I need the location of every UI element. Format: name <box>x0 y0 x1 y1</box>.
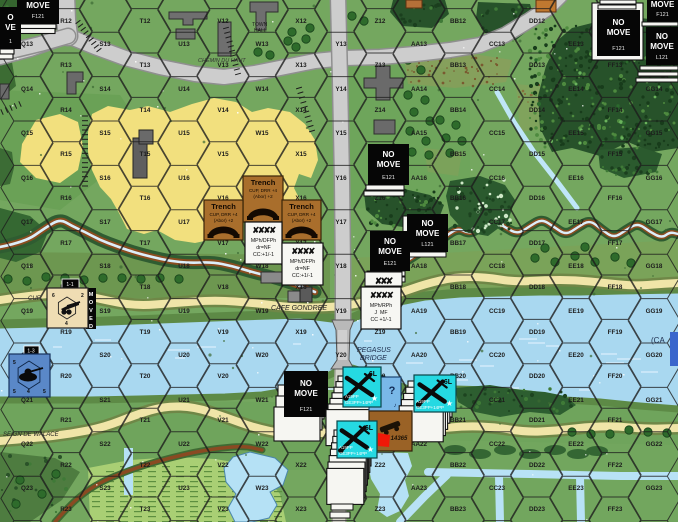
svg-text:MOVE: MOVE <box>416 229 440 238</box>
svg-text:X15: X15 <box>295 151 307 158</box>
svg-text:T13: T13 <box>140 62 151 69</box>
svg-text:Q18: Q18 <box>21 263 33 270</box>
svg-text:V17: V17 <box>217 240 229 247</box>
svg-text:V15: V15 <box>217 151 229 158</box>
svg-text:BB15: BB15 <box>450 151 467 158</box>
svg-text:MOVE: MOVE <box>650 42 674 51</box>
svg-text:✘✘✘✘: ✘✘✘✘ <box>252 225 276 235</box>
svg-text:V22: V22 <box>217 462 229 469</box>
svg-text:CUP, DRR +4: CUP, DRR +4 <box>287 212 316 217</box>
svg-text:EE16: EE16 <box>568 175 584 182</box>
svg-text:W23: W23 <box>256 485 269 492</box>
svg-text:Y14: Y14 <box>335 86 347 93</box>
svg-text:Q19: Q19 <box>21 308 33 315</box>
svg-text:NO: NO <box>422 219 434 228</box>
svg-text:Q15: Q15 <box>21 130 33 137</box>
svg-text:Q22: Q22 <box>21 441 33 448</box>
svg-text:DD20: DD20 <box>529 373 546 380</box>
svg-text:DD12: DD12 <box>529 18 546 25</box>
svg-text:DD16: DD16 <box>529 195 546 202</box>
svg-text:R21: R21 <box>60 417 72 424</box>
svg-text:CC17: CC17 <box>489 219 506 226</box>
svg-text:S19: S19 <box>99 308 111 315</box>
svg-text:A19PP: A19PP <box>416 399 430 404</box>
svg-text:V14: V14 <box>217 107 229 114</box>
svg-text:MOVE: MOVE <box>377 160 401 169</box>
svg-text:R15: R15 <box>60 151 72 158</box>
svg-text:MOVE: MOVE <box>607 28 631 37</box>
svg-text:CC14: CC14 <box>489 86 506 93</box>
svg-text:EE18: EE18 <box>568 263 584 270</box>
svg-text:GG22: GG22 <box>646 441 663 448</box>
svg-text:E: E <box>89 316 93 322</box>
svg-text:F121: F121 <box>32 14 45 20</box>
svg-text:CC13: CC13 <box>489 41 506 48</box>
svg-text:L121: L121 <box>421 242 433 248</box>
svg-text:S22: S22 <box>99 441 111 448</box>
svg-text:R19: R19 <box>60 329 72 336</box>
svg-text:Z12: Z12 <box>375 18 386 25</box>
svg-text:DD23: DD23 <box>529 506 546 513</box>
svg-text:Z23: Z23 <box>375 506 386 513</box>
svg-text:CAFE GONDREE: CAFE GONDREE <box>271 305 327 312</box>
svg-text:CC:+1/-1: CC:+1/-1 <box>253 252 274 258</box>
svg-text:FF18: FF18 <box>608 284 623 291</box>
svg-text:Q17: Q17 <box>21 219 33 226</box>
svg-text:U15: U15 <box>178 130 190 137</box>
svg-text:4: 4 <box>27 389 30 395</box>
svg-text:CC20: CC20 <box>489 352 506 359</box>
svg-text:FF17: FF17 <box>608 240 623 247</box>
svg-text:BB19: BB19 <box>450 329 467 336</box>
svg-text:MOVE: MOVE <box>378 247 402 256</box>
svg-text:(Abor) +2: (Abor) +2 <box>292 218 312 223</box>
svg-text:FF14: FF14 <box>608 107 623 114</box>
svg-text:6: 6 <box>52 293 55 299</box>
svg-text:Y19: Y19 <box>335 308 347 315</box>
svg-text:(Abor) +2: (Abor) +2 <box>214 218 234 223</box>
svg-text:EE19: EE19 <box>568 308 584 315</box>
svg-text:DD21: DD21 <box>529 417 546 424</box>
svg-text:Y16: Y16 <box>335 175 347 182</box>
svg-text:S16: S16 <box>99 175 111 182</box>
svg-text:Z14: Z14 <box>375 107 386 114</box>
svg-text:U17: U17 <box>178 219 190 226</box>
svg-text:W20: W20 <box>256 352 269 359</box>
svg-text:J MF: J MF <box>375 310 388 316</box>
svg-text:D: D <box>89 324 93 330</box>
svg-text:BB12: BB12 <box>450 18 467 25</box>
svg-text:CC:+1/-1: CC:+1/-1 <box>292 273 313 279</box>
svg-text:R20: R20 <box>60 373 72 380</box>
svg-text:AA16: AA16 <box>411 175 428 182</box>
svg-text:FF16: FF16 <box>608 195 623 202</box>
svg-text:CC19: CC19 <box>489 308 506 315</box>
svg-text:S23: S23 <box>99 485 111 492</box>
svg-text:DD17: DD17 <box>529 240 546 247</box>
svg-text:A19PP: A19PP <box>339 445 353 450</box>
svg-text:CC22: CC22 <box>489 441 506 448</box>
svg-text:X19: X19 <box>295 329 307 336</box>
svg-text:S15: S15 <box>99 130 111 137</box>
svg-text:GG20: GG20 <box>646 352 663 359</box>
svg-text:R16: R16 <box>60 195 72 202</box>
svg-text:FF19: FF19 <box>608 329 623 336</box>
svg-text:Z13: Z13 <box>375 62 386 69</box>
svg-text:BB13: BB13 <box>450 62 467 69</box>
svg-text:S20: S20 <box>99 352 111 359</box>
svg-text:V12: V12 <box>217 18 229 25</box>
svg-text:★: ★ <box>367 445 374 454</box>
svg-text:EE21: EE21 <box>568 397 584 404</box>
svg-text:V: V <box>89 308 93 314</box>
svg-text:5: 5 <box>43 389 46 395</box>
svg-text:GE3PP+14PP: GE3PP+14PP <box>416 405 444 410</box>
svg-text:EE14: EE14 <box>568 86 584 93</box>
svg-text:GG23: GG23 <box>646 485 663 492</box>
svg-text:(Abor) +2: (Abor) +2 <box>253 194 273 199</box>
svg-text:CHEMIN DU HAUT: CHEMIN DU HAUT <box>198 58 246 64</box>
svg-text:O: O <box>89 300 94 306</box>
svg-text:T16: T16 <box>140 195 151 202</box>
svg-text:X23: X23 <box>295 506 307 513</box>
svg-text:W14: W14 <box>256 86 269 93</box>
svg-text:MOVE: MOVE <box>26 1 50 10</box>
svg-text:W13: W13 <box>256 41 269 48</box>
svg-text:AA23: AA23 <box>411 485 428 492</box>
svg-text:S14: S14 <box>99 86 111 93</box>
svg-text:dr=NF: dr=NF <box>295 266 310 272</box>
svg-text:GG19: GG19 <box>646 308 663 315</box>
svg-text:U21: U21 <box>178 397 190 404</box>
svg-text:AA18: AA18 <box>411 263 428 270</box>
svg-text:BRIDGE: BRIDGE <box>360 355 387 362</box>
svg-text:PEGASUS: PEGASUS <box>357 347 391 354</box>
svg-text:AA19: AA19 <box>411 308 428 315</box>
svg-text:GG21: GG21 <box>646 397 663 404</box>
svg-text:M: M <box>89 292 94 298</box>
svg-text:Y15: Y15 <box>335 130 347 137</box>
svg-text:NO: NO <box>383 150 395 159</box>
svg-text:F121: F121 <box>300 407 313 413</box>
svg-text:U22: U22 <box>178 441 190 448</box>
svg-text:FF23: FF23 <box>608 506 623 513</box>
svg-text:V20: V20 <box>217 373 229 380</box>
svg-text:R17: R17 <box>60 240 72 247</box>
svg-text:R13: R13 <box>60 62 72 69</box>
svg-text:E121: E121 <box>382 175 395 181</box>
svg-text:V23: V23 <box>217 506 229 513</box>
svg-text:FF22: FF22 <box>608 462 623 469</box>
svg-text:R12: R12 <box>60 18 72 25</box>
svg-text:CC +1/-1: CC +1/-1 <box>371 317 392 323</box>
svg-text:EE13: EE13 <box>568 41 584 48</box>
svg-text:✘✘✘✘: ✘✘✘✘ <box>291 246 315 256</box>
svg-text:L121: L121 <box>656 55 668 61</box>
svg-text:S17: S17 <box>99 219 111 226</box>
svg-text:14365: 14365 <box>391 436 408 442</box>
svg-text:EE17: EE17 <box>568 219 584 226</box>
svg-text:GG18: GG18 <box>646 263 663 270</box>
svg-text:R22: R22 <box>60 462 72 469</box>
svg-text:T17: T17 <box>140 240 151 247</box>
svg-text:Q16: Q16 <box>21 175 33 182</box>
svg-text:X12: X12 <box>295 18 307 25</box>
svg-text:Y18: Y18 <box>335 263 347 270</box>
svg-text:S21: S21 <box>99 397 111 404</box>
svg-text:6L: 6L <box>365 425 374 432</box>
svg-text:W19: W19 <box>256 308 269 315</box>
svg-text:E121: E121 <box>384 261 397 267</box>
svg-text:V18: V18 <box>217 284 229 291</box>
svg-text:X14: X14 <box>295 107 307 114</box>
svg-text:VE: VE <box>5 23 16 32</box>
svg-text:V19: V19 <box>217 329 229 336</box>
svg-text:T18: T18 <box>140 284 151 291</box>
svg-text:T20: T20 <box>140 373 151 380</box>
svg-text:GE3PP+14PP: GE3PP+14PP <box>339 451 367 456</box>
svg-text:SEIGN DE WALACE: SEIGN DE WALACE <box>3 432 60 438</box>
svg-text:AA14: AA14 <box>411 86 428 93</box>
svg-text:Trench: Trench <box>211 202 236 211</box>
svg-text:F121: F121 <box>612 46 625 52</box>
svg-text:DD18: DD18 <box>529 284 546 291</box>
svg-text:BB14: BB14 <box>450 107 467 114</box>
svg-text:Y13: Y13 <box>335 41 347 48</box>
svg-text:MPh/DFPh: MPh/DFPh <box>251 238 276 244</box>
svg-text:Q21: Q21 <box>21 397 33 404</box>
svg-text:NO: NO <box>613 18 625 27</box>
svg-text:NO: NO <box>300 379 312 388</box>
svg-text:FF15: FF15 <box>608 151 623 158</box>
svg-text:BB21: BB21 <box>450 417 467 424</box>
svg-text:Q13: Q13 <box>21 41 33 48</box>
svg-text:Z19: Z19 <box>375 329 386 336</box>
svg-text:CC15: CC15 <box>489 130 506 137</box>
svg-text:AA13: AA13 <box>411 41 428 48</box>
svg-text:W22: W22 <box>256 441 269 448</box>
svg-text:BB22: BB22 <box>450 462 467 469</box>
svg-text:DD15: DD15 <box>529 151 546 158</box>
svg-text:U20: U20 <box>178 352 190 359</box>
svg-text:V21: V21 <box>217 417 229 424</box>
svg-text:6L: 6L <box>369 371 378 378</box>
svg-text:T14: T14 <box>140 107 151 114</box>
svg-text:1: 1 <box>9 39 12 45</box>
svg-text:dr=NF: dr=NF <box>256 245 271 251</box>
svg-text:GG16: GG16 <box>646 175 663 182</box>
svg-text:GG14: GG14 <box>646 86 663 93</box>
svg-text:1-1: 1-1 <box>66 282 73 288</box>
svg-text:O: O <box>7 13 13 22</box>
svg-text:X22: X22 <box>295 462 307 469</box>
svg-text:CUP, DRR +4: CUP, DRR +4 <box>249 188 278 193</box>
svg-text:5: 5 <box>13 389 16 395</box>
svg-text:Z22: Z22 <box>375 462 386 469</box>
svg-text:BB17: BB17 <box>450 240 467 247</box>
svg-text:Y20: Y20 <box>335 352 347 359</box>
svg-text:Q23: Q23 <box>21 485 33 492</box>
svg-text:EE23: EE23 <box>568 485 584 492</box>
svg-text:T22: T22 <box>140 462 151 469</box>
svg-text:FF21: FF21 <box>608 417 623 424</box>
svg-text:BB18: BB18 <box>450 284 467 291</box>
svg-text:CUF: CUF <box>28 296 41 302</box>
svg-text:R14: R14 <box>60 107 72 114</box>
svg-text:5: 5 <box>13 360 16 366</box>
svg-text:Q14: Q14 <box>21 86 33 93</box>
svg-text:FF20: FF20 <box>608 373 623 380</box>
svg-text:U23: U23 <box>178 485 190 492</box>
svg-text:EE22: EE22 <box>568 441 584 448</box>
svg-text:A19PP: A19PP <box>345 394 359 399</box>
svg-text:S18: S18 <box>99 263 111 270</box>
svg-text:U13: U13 <box>178 41 190 48</box>
svg-text:DD22: DD22 <box>529 462 546 469</box>
svg-text:MOVE: MOVE <box>651 0 675 9</box>
svg-text:Trench: Trench <box>289 202 314 211</box>
svg-text:W15: W15 <box>256 130 269 137</box>
svg-text:4: 4 <box>65 321 68 327</box>
svg-text:AA20: AA20 <box>411 352 428 359</box>
svg-text:CC16: CC16 <box>489 175 506 182</box>
svg-text:GE3PP+14PP: GE3PP+14PP <box>345 400 373 405</box>
svg-text:U19: U19 <box>178 308 190 315</box>
svg-text:X13: X13 <box>295 62 307 69</box>
svg-text:EE20: EE20 <box>568 352 584 359</box>
svg-text:NO: NO <box>384 237 396 246</box>
svg-text:★: ★ <box>446 399 453 408</box>
svg-text:✘✘✘: ✘✘✘ <box>375 276 393 286</box>
svg-text:FF13: FF13 <box>608 62 623 69</box>
svg-text:T21: T21 <box>140 417 151 424</box>
svg-text:F121: F121 <box>656 12 669 18</box>
svg-text:CC18: CC18 <box>489 263 506 270</box>
svg-text:T19: T19 <box>140 329 151 336</box>
svg-text:W21: W21 <box>256 397 269 404</box>
svg-text:MPh/RPh: MPh/RPh <box>370 303 392 309</box>
svg-text:MOVE: MOVE <box>294 389 318 398</box>
svg-text:NO: NO <box>656 32 668 41</box>
svg-text:T15: T15 <box>140 151 151 158</box>
svg-text:(CA: (CA <box>651 336 665 345</box>
svg-text:U18: U18 <box>178 263 190 270</box>
svg-text:R23: R23 <box>60 506 72 513</box>
svg-text:2: 2 <box>81 293 84 299</box>
svg-text:EE15: EE15 <box>568 130 584 137</box>
svg-text:HALL: HALL <box>254 28 267 34</box>
svg-text:♪: ♪ <box>394 403 397 409</box>
svg-text:✘✘✘✘: ✘✘✘✘ <box>370 290 394 300</box>
svg-text:T23: T23 <box>140 506 151 513</box>
svg-text:MPh/DFPh: MPh/DFPh <box>290 259 315 265</box>
svg-text:BB16: BB16 <box>450 195 467 202</box>
svg-text:AA15: AA15 <box>411 130 428 137</box>
svg-text:GG15: GG15 <box>646 130 663 137</box>
svg-text:CC21: CC21 <box>489 397 506 404</box>
svg-text:Y17: Y17 <box>335 219 347 226</box>
svg-text:DD19: DD19 <box>529 329 546 336</box>
svg-text:CUP, DRR +4: CUP, DRR +4 <box>209 212 238 217</box>
svg-text:DD14: DD14 <box>529 107 546 114</box>
svg-text:6L: 6L <box>444 379 453 386</box>
svg-text:U16: U16 <box>178 175 190 182</box>
svg-text:T12: T12 <box>140 18 151 25</box>
svg-text:GG17: GG17 <box>646 219 663 226</box>
svg-text:DD13: DD13 <box>529 62 546 69</box>
svg-text:CC23: CC23 <box>489 485 506 492</box>
svg-text:U14: U14 <box>178 86 190 93</box>
svg-text:BB23: BB23 <box>450 506 467 513</box>
svg-text:S13: S13 <box>99 41 111 48</box>
svg-text:Trench: Trench <box>251 178 276 187</box>
svg-text:?: ? <box>389 385 396 397</box>
